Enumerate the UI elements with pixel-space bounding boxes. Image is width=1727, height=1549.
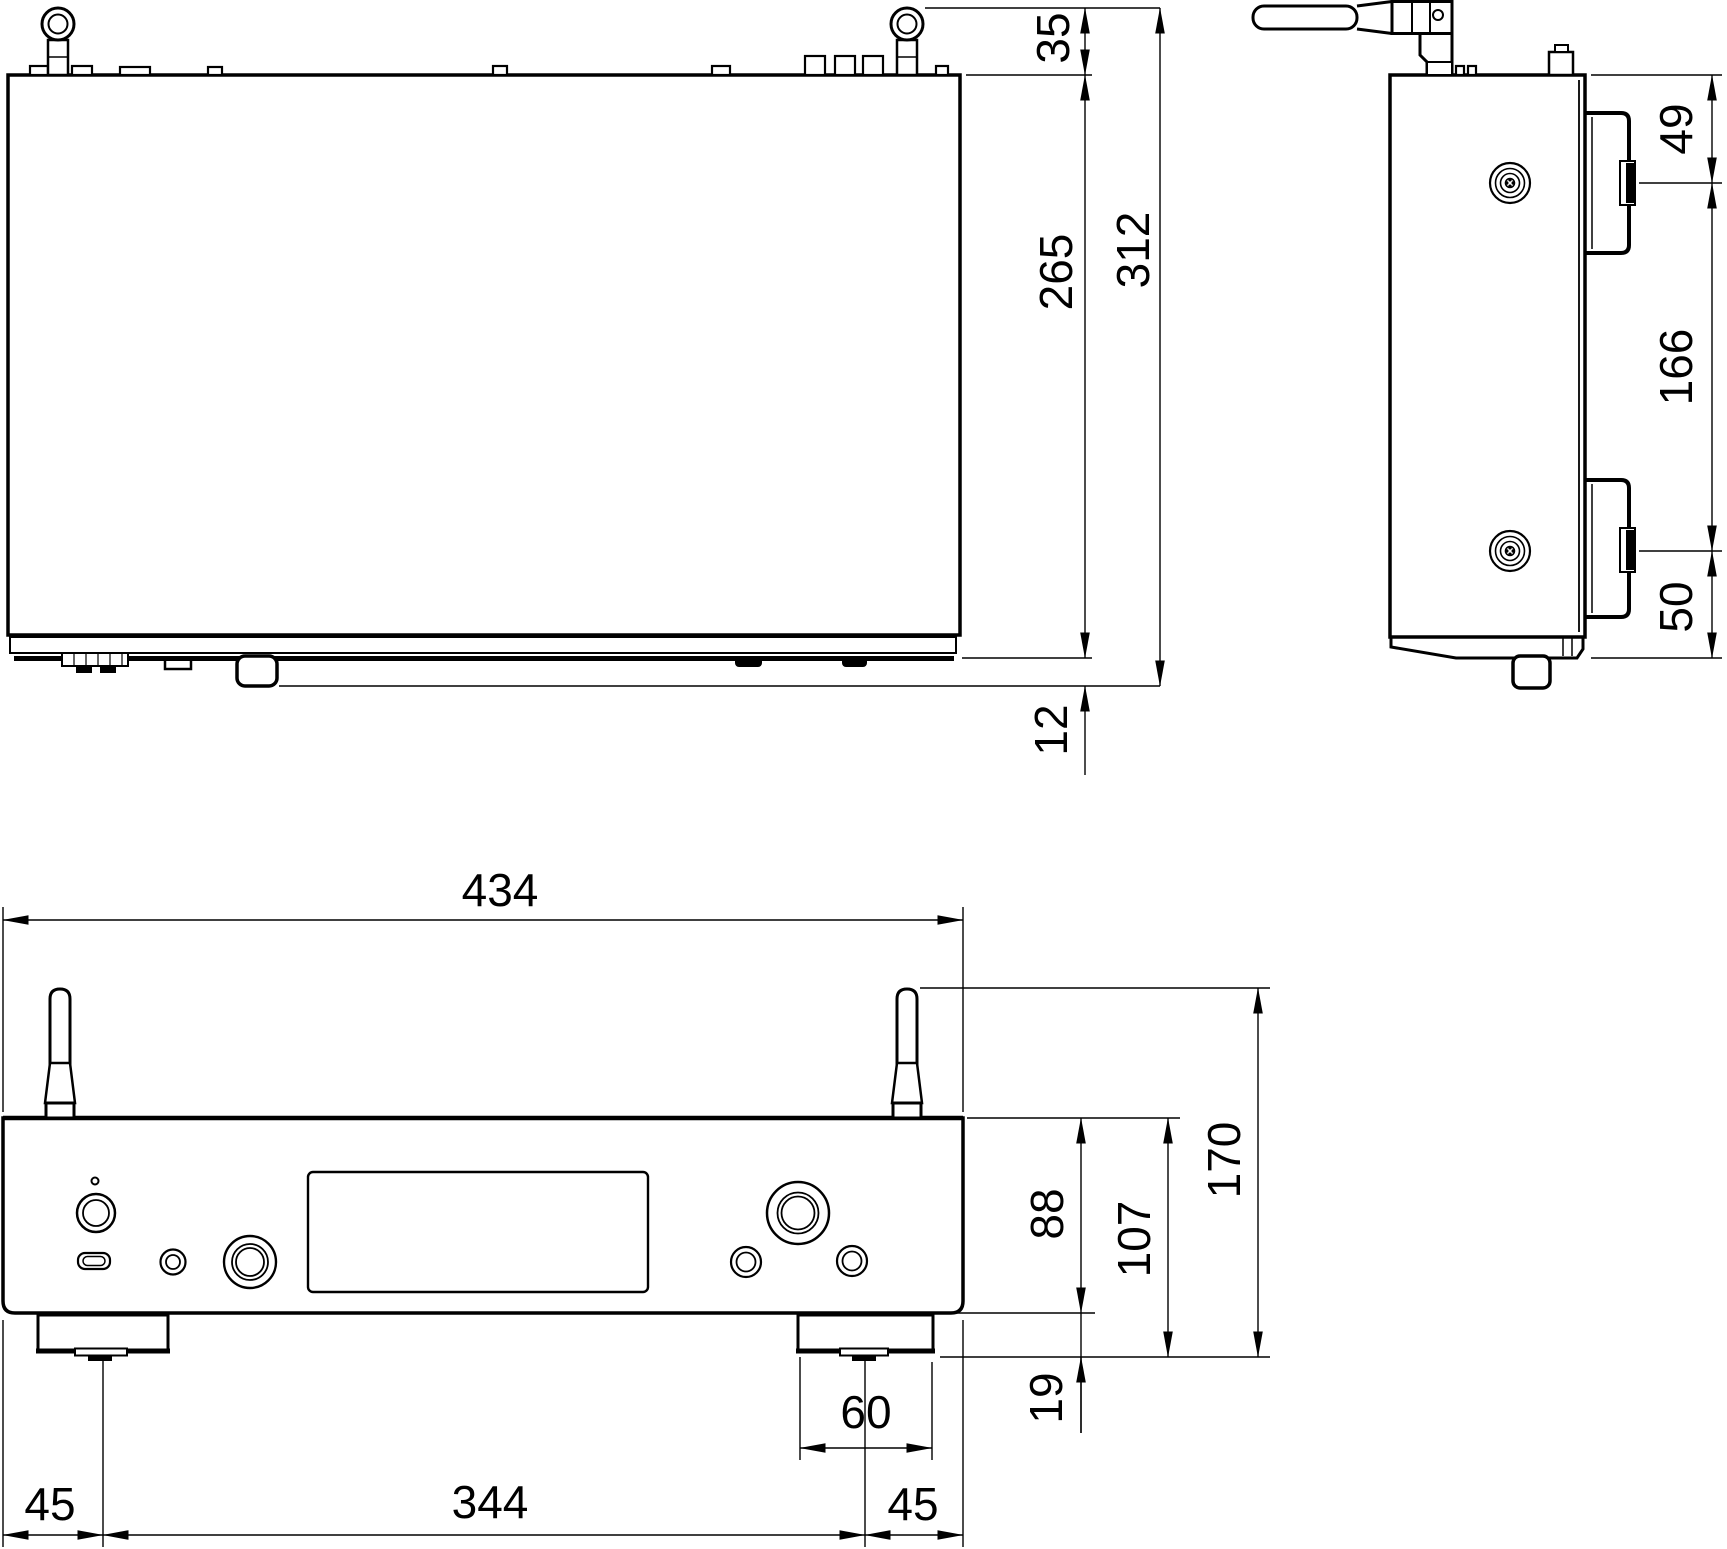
dim-label-35: 35 — [1027, 12, 1079, 63]
dim-label-107: 107 — [1108, 1201, 1160, 1278]
dim-label-12: 12 — [1025, 704, 1077, 755]
standby-led — [92, 1178, 99, 1185]
side-view-foot-front — [1585, 480, 1635, 617]
top-view-power-button-protrusion — [62, 653, 128, 673]
top-view-button-protrusion-right — [842, 656, 867, 667]
side-view-antenna-folded — [1253, 2, 1452, 76]
top-view-chassis-outline — [8, 75, 960, 635]
volume-knob — [767, 1182, 829, 1244]
display-window — [308, 1172, 648, 1292]
top-view-rear-connector-bumps — [30, 56, 948, 75]
dim-label-434: 434 — [462, 864, 539, 916]
power-button — [77, 1194, 115, 1232]
dim-label-50: 50 — [1650, 581, 1702, 632]
front-view-foot-right — [796, 1315, 935, 1361]
usb-port — [78, 1253, 110, 1269]
dim-label-88: 88 — [1021, 1188, 1073, 1239]
side-view-front-bevel — [1391, 637, 1583, 658]
front-view-foot-left — [36, 1315, 170, 1361]
technical-drawing-page: 35 265 312 12 — [0, 0, 1727, 1549]
dim-label-49: 49 — [1650, 103, 1702, 154]
top-view-extension-lines — [279, 8, 1160, 686]
dim-label-312: 312 — [1107, 212, 1159, 289]
side-view: 49 166 50 — [1253, 2, 1722, 689]
drawing-canvas: 35 265 312 12 — [0, 0, 1727, 1549]
headphone-jack — [224, 1236, 276, 1288]
top-view-button-protrusion-left — [735, 656, 762, 667]
dim-label-45-right: 45 — [887, 1478, 938, 1530]
side-view-screw-rear — [1490, 163, 1530, 203]
front-button-left — [731, 1247, 761, 1277]
mini-jack — [161, 1250, 186, 1275]
front-view: 434 88 107 170 19 60 45 344 45 — [3, 864, 1270, 1547]
top-view: 35 265 312 12 — [8, 8, 1160, 775]
dim-label-265: 265 — [1030, 234, 1082, 311]
top-view-antenna-left — [42, 8, 74, 75]
side-view-screw-front — [1490, 531, 1530, 571]
front-button-right — [837, 1246, 867, 1276]
dim-label-166: 166 — [1650, 329, 1702, 406]
dim-label-60: 60 — [840, 1386, 891, 1438]
side-view-headphone-jack-protrusion — [1513, 656, 1550, 688]
side-view-foot-rear — [1585, 113, 1635, 253]
dim-label-19: 19 — [1020, 1372, 1072, 1423]
side-view-rear-connector-bumps — [1456, 45, 1573, 75]
top-view-dimension-lines — [1085, 8, 1160, 775]
top-view-headphone-jack-protrusion — [237, 656, 277, 686]
top-view-antenna-right — [891, 8, 923, 75]
dim-label-170: 170 — [1198, 1122, 1250, 1199]
top-view-front-panel-strip — [10, 637, 956, 653]
front-view-antenna-left — [45, 989, 75, 1118]
dim-label-45-left: 45 — [24, 1478, 75, 1530]
front-view-antenna-right — [892, 989, 922, 1118]
front-view-extension-lines — [3, 907, 1270, 1547]
dim-label-344: 344 — [452, 1476, 529, 1528]
side-view-body-outline — [1390, 75, 1585, 637]
